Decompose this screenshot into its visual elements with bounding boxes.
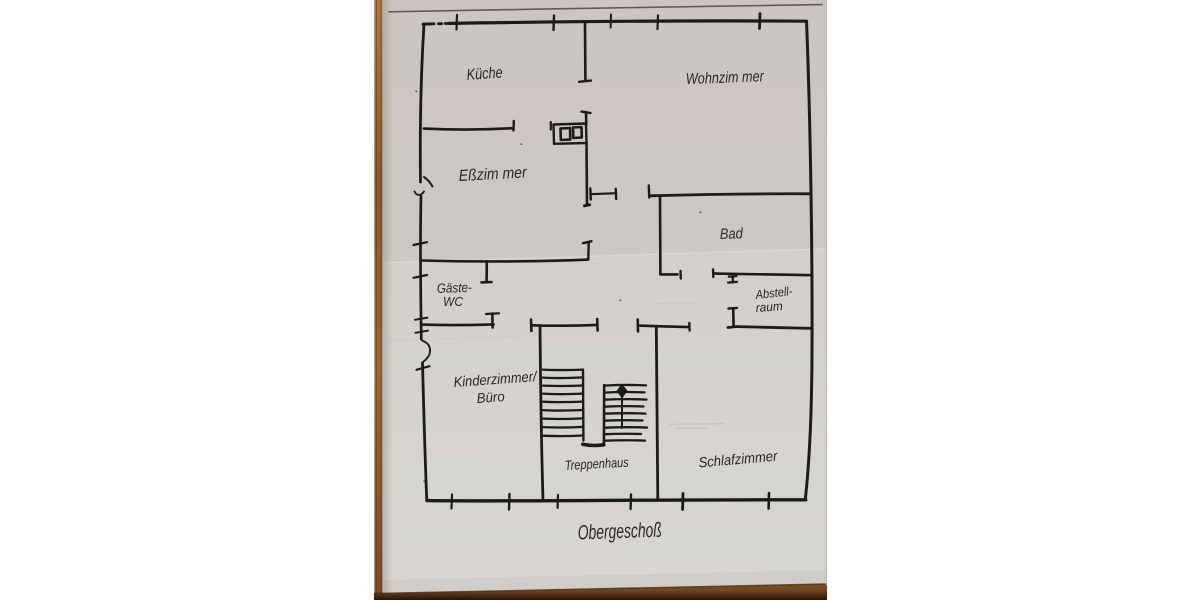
svg-text:Obergeschoß: Obergeschoß	[577, 519, 662, 545]
svg-text:raum: raum	[755, 299, 783, 315]
svg-text:Eßzim mer: Eßzim mer	[458, 164, 527, 185]
svg-text:Büro: Büro	[476, 388, 505, 406]
svg-text:WC: WC	[443, 294, 464, 309]
svg-text:Bad: Bad	[720, 225, 744, 243]
svg-text:Wohnzim mer: Wohnzim mer	[686, 68, 765, 88]
svg-text:Küche: Küche	[466, 65, 503, 84]
